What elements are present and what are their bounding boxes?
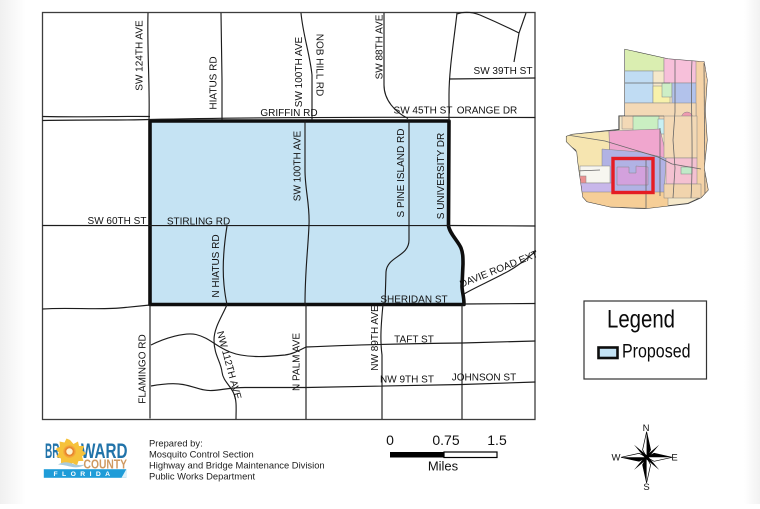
svg-text:Mosquito Control Section: Mosquito Control Section <box>149 449 254 460</box>
svg-text:NOB HILL RD: NOB HILL RD <box>314 34 325 96</box>
svg-text:0.75: 0.75 <box>432 432 459 448</box>
svg-text:W: W <box>612 453 621 464</box>
svg-text:S: S <box>643 482 649 493</box>
svg-text:ORANGE DR: ORANGE DR <box>457 106 518 117</box>
svg-text:N HIATUS RD: N HIATUS RD <box>211 234 222 297</box>
svg-text:Prepared by:: Prepared by: <box>149 438 203 449</box>
svg-text:JOHNSON ST: JOHNSON ST <box>452 373 516 384</box>
svg-text:SW 60TH ST: SW 60TH ST <box>88 216 147 227</box>
svg-text:SW 124TH AVE: SW 124TH AVE <box>135 20 146 91</box>
svg-text:NW 89TH AVE: NW 89TH AVE <box>370 305 381 371</box>
svg-text:S PINE ISLAND RD: S PINE ISLAND RD <box>396 129 407 218</box>
svg-text:FLAMINGO RD: FLAMINGO RD <box>138 334 149 403</box>
svg-text:Highway and Bridge Maintenance: Highway and Bridge Maintenance Division <box>149 460 325 471</box>
svg-text:HIATUS RD: HIATUS RD <box>209 56 220 109</box>
svg-text:SW 88TH AVE: SW 88TH AVE <box>375 14 386 79</box>
svg-text:COUNTY: COUNTY <box>84 457 128 471</box>
svg-text:FLORIDA: FLORIDA <box>53 471 114 478</box>
svg-text:NW 9TH ST: NW 9TH ST <box>380 375 434 386</box>
svg-text:E: E <box>671 453 677 464</box>
svg-text:N PALM AVE: N PALM AVE <box>292 333 303 391</box>
svg-text:S UNIVERSITY DR: S UNIVERSITY DR <box>436 133 447 220</box>
svg-text:1.5: 1.5 <box>487 432 507 448</box>
svg-text:SHERIDAN ST: SHERIDAN ST <box>380 295 447 306</box>
svg-text:N: N <box>643 423 650 434</box>
svg-text:0: 0 <box>386 432 394 448</box>
svg-text:SW 39TH ST: SW 39TH ST <box>474 66 533 77</box>
svg-text:GRIFFIN RD: GRIFFIN RD <box>260 108 317 119</box>
svg-text:SW 100TH AVE: SW 100TH AVE <box>294 36 305 107</box>
svg-text:TAFT ST: TAFT ST <box>394 335 434 346</box>
svg-text:Legend: Legend <box>607 306 675 334</box>
svg-text:Public Works Department: Public Works Department <box>149 471 256 482</box>
svg-text:Proposed: Proposed <box>622 342 691 363</box>
svg-text:STIRLING RD: STIRLING RD <box>167 217 230 228</box>
svg-text:Miles: Miles <box>428 459 459 474</box>
svg-text:SW 100TH AVE: SW 100TH AVE <box>293 130 304 201</box>
svg-text:BR: BR <box>45 440 60 463</box>
svg-text:SW 45TH ST: SW 45TH ST <box>394 106 453 117</box>
